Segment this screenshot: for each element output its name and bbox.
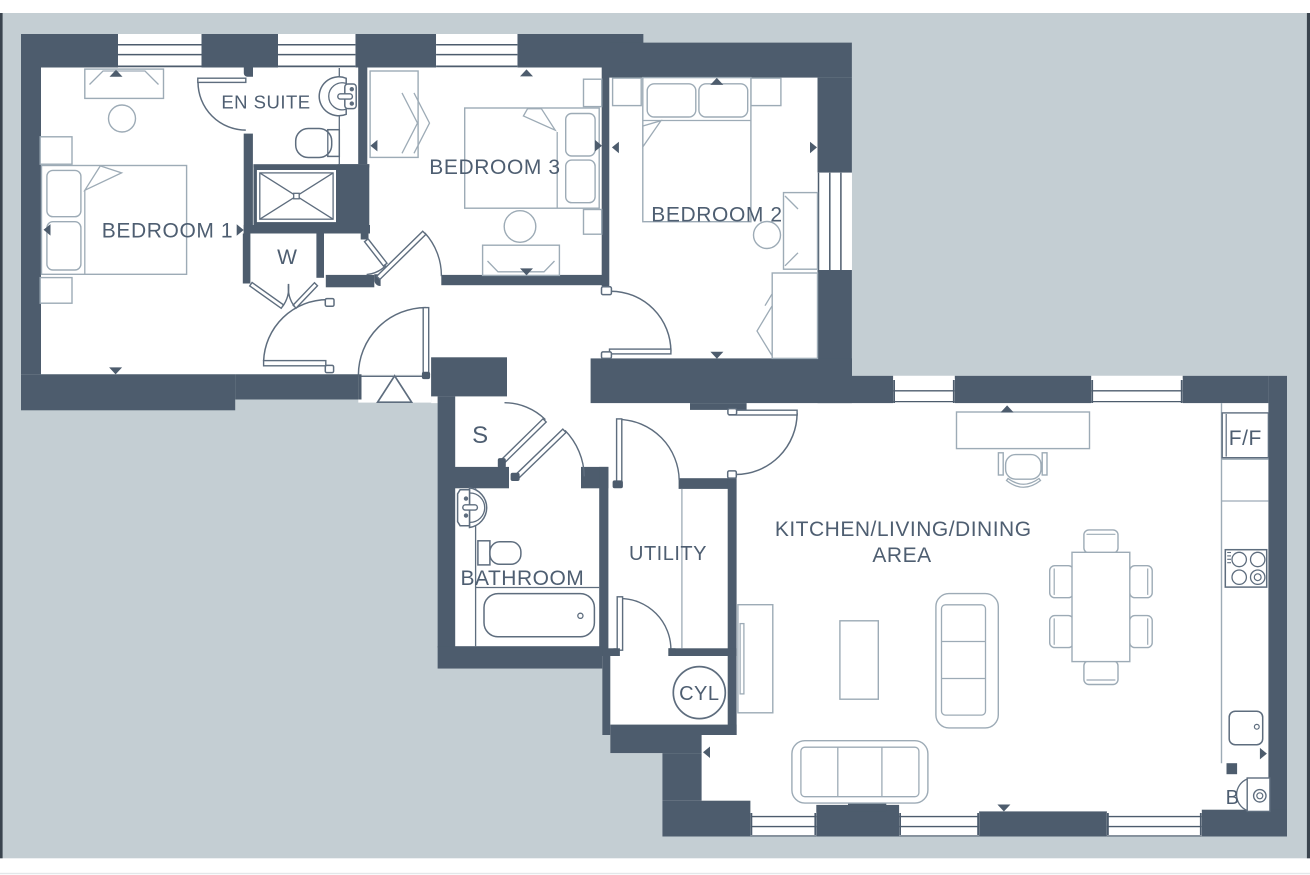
svg-text:BATHROOM: BATHROOM [461,567,585,590]
svg-text:KITCHEN/LIVING/DINING: KITCHEN/LIVING/DINING [775,518,1032,541]
svg-text:UTILITY: UTILITY [629,543,707,565]
svg-text:AREA: AREA [872,544,931,567]
svg-text:BEDROOM 1: BEDROOM 1 [102,219,233,242]
svg-text:S: S [472,422,489,449]
svg-text:B: B [1226,787,1240,809]
svg-text:BEDROOM 3: BEDROOM 3 [429,156,560,179]
svg-text:F/F: F/F [1229,427,1262,450]
svg-text:BEDROOM 2: BEDROOM 2 [651,203,782,226]
svg-text:W: W [277,246,297,269]
svg-text:CYL: CYL [679,683,719,705]
svg-text:EN SUITE: EN SUITE [221,92,310,113]
